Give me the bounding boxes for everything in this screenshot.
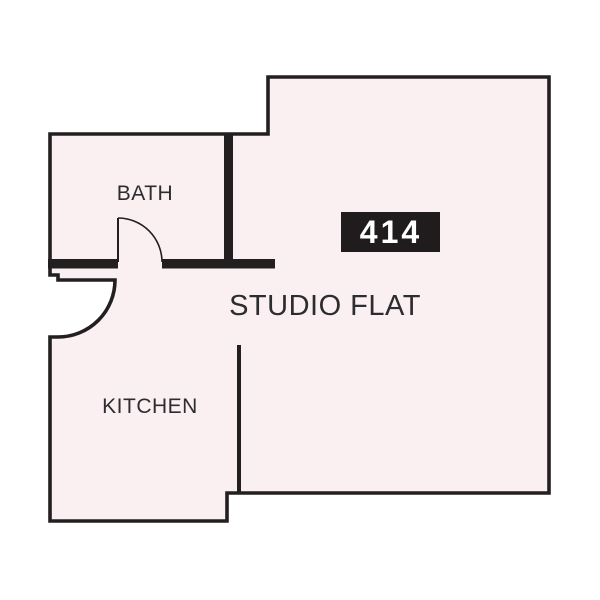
- bath-divider-wall: [224, 134, 233, 259]
- floorplan-canvas: BATH KITCHEN STUDIO FLAT 414: [0, 0, 600, 600]
- bath-bottom-wall-left: [48, 259, 118, 269]
- bath-bottom-wall-right: [162, 259, 275, 269]
- kitchen-room-label: KITCHEN: [102, 395, 198, 418]
- unit-number-text: 414: [360, 214, 422, 250]
- unit-type-label: STUDIO FLAT: [229, 290, 421, 322]
- floorplan-drawing: BATH KITCHEN STUDIO FLAT 414: [0, 0, 600, 600]
- bath-room-label: BATH: [117, 182, 173, 205]
- unit-number-badge: 414: [341, 212, 440, 252]
